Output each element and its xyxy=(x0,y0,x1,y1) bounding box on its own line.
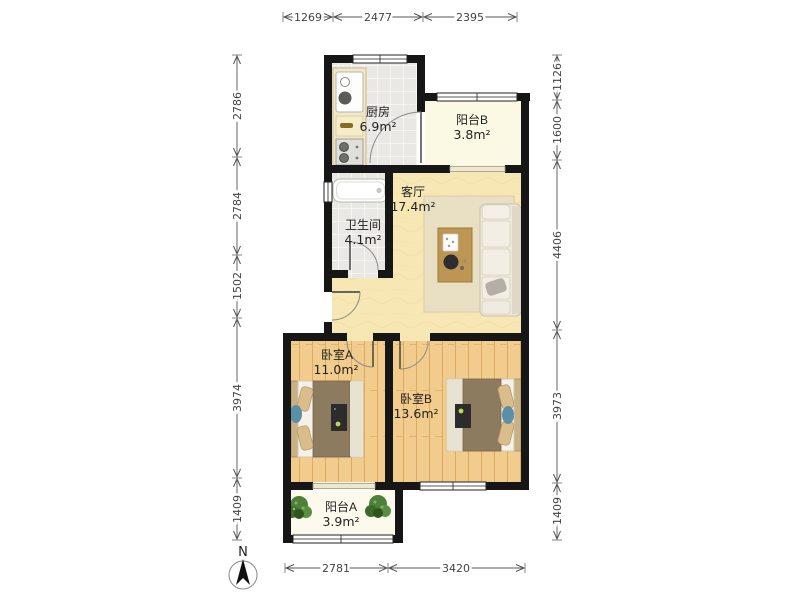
dim-right-5: 1409 xyxy=(551,497,564,525)
tv-panel-b xyxy=(455,404,471,428)
floor-plan-canvas: 厨房 6.9m² 阳台B 3.8m² 客厅 17.4m² 卫生间 4.1m² 卧… xyxy=(0,0,800,600)
bathroom-window xyxy=(324,182,332,202)
north-arrow-icon xyxy=(236,559,250,585)
bed-b xyxy=(447,379,521,451)
dim-left-1: 2786 xyxy=(231,92,244,120)
balcony-b-label: 阳台B xyxy=(456,112,488,127)
bathtub xyxy=(333,179,388,202)
kitchen-window xyxy=(353,55,407,63)
dim-right-2: 1600 xyxy=(551,116,564,144)
bedroom-a-balcony-a-opening xyxy=(313,484,375,489)
kitchen-area: 6.9m² xyxy=(359,119,396,134)
bathroom-area: 4.1m² xyxy=(344,232,381,247)
bedroom-b-window xyxy=(420,482,486,490)
bed-a xyxy=(290,381,363,457)
bedroom-b-area: 13.6m² xyxy=(393,406,438,421)
kitchen-stove xyxy=(336,139,363,165)
north-label: N xyxy=(238,545,248,560)
dim-left-5: 1409 xyxy=(231,495,244,523)
dim-right-1: 1126 xyxy=(551,63,564,91)
bathroom-label: 卫生间 xyxy=(345,218,381,232)
kitchen-label: 厨房 xyxy=(366,104,390,119)
dimension-left: 2786 2784 1502 3974 1409 xyxy=(231,55,244,540)
dim-left-4: 3974 xyxy=(231,384,244,412)
bedroom-b-label: 卧室B xyxy=(400,391,432,406)
balcony-a-window xyxy=(293,535,393,543)
balcony-b-window xyxy=(437,93,517,101)
dim-bottom-2: 3420 xyxy=(442,562,470,575)
tv-panel-a xyxy=(331,404,347,431)
dimension-right: 1126 1600 4406 3973 1409 xyxy=(551,55,564,540)
dim-top-2: 2477 xyxy=(364,11,392,24)
balcony-a-label: 阳台A xyxy=(325,499,357,514)
dim-left-2: 2784 xyxy=(231,192,244,220)
dim-right-3: 4406 xyxy=(551,231,564,259)
dimension-top: 1269 2477 2395 xyxy=(283,11,517,24)
dim-left-3: 1502 xyxy=(231,272,244,300)
living-area: 17.4m² xyxy=(390,199,435,214)
kettle xyxy=(444,255,459,270)
north-compass: N xyxy=(229,545,257,589)
dim-top-3: 2395 xyxy=(456,11,484,24)
dim-top-1: 1269 xyxy=(294,11,322,24)
sofa xyxy=(480,204,521,316)
balcony-b-area: 3.8m² xyxy=(453,127,490,142)
dimension-bottom: 2781 3420 xyxy=(285,562,525,575)
kitchen-counter xyxy=(333,68,366,167)
coffee-table xyxy=(438,228,472,282)
balcony-a-area: 3.9m² xyxy=(322,514,359,529)
living-balcony-b-opening xyxy=(450,167,505,172)
kitchen-sink xyxy=(336,72,363,112)
dim-right-4: 3973 xyxy=(551,392,564,420)
dim-bottom-1: 2781 xyxy=(322,562,350,575)
living-label: 客厅 xyxy=(401,184,425,199)
bedroom-a-area: 11.0m² xyxy=(313,362,358,377)
bedroom-a-label: 卧室A xyxy=(321,347,353,362)
